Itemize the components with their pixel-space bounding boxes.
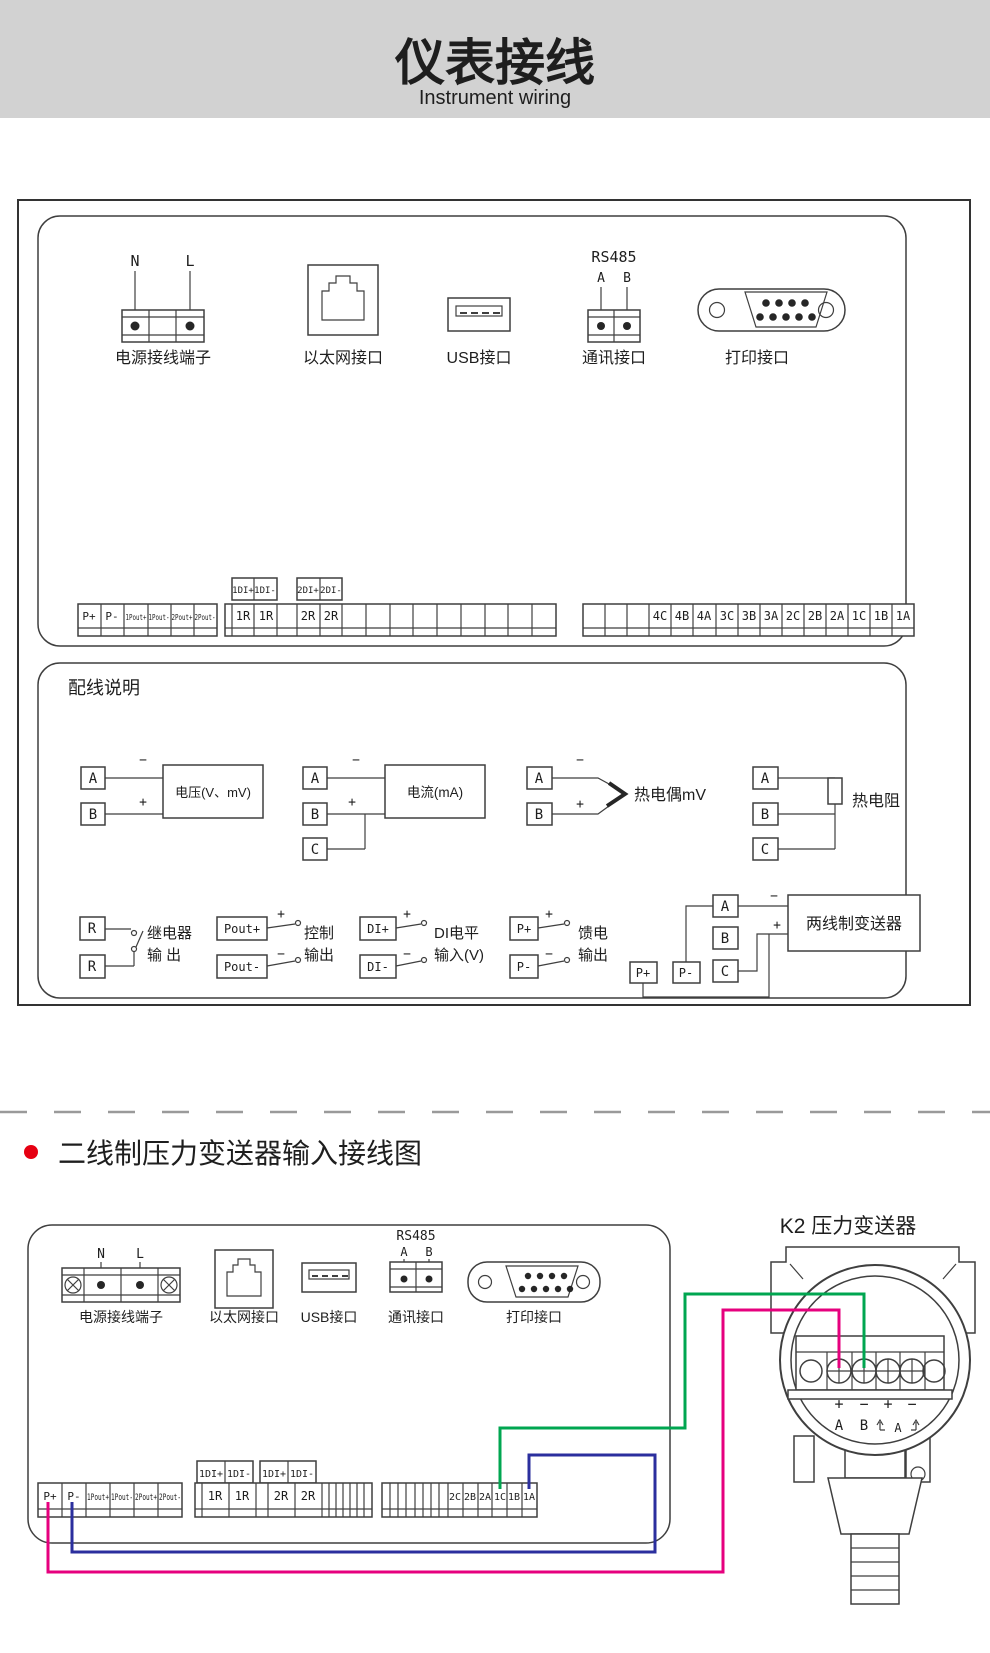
strip-cell: 2R bbox=[301, 609, 316, 623]
screw-b-label: B bbox=[860, 1418, 868, 1434]
strip-cell: 2R bbox=[324, 609, 339, 623]
current-label: 电流(mA) bbox=[407, 785, 463, 800]
terminal-a: A bbox=[311, 771, 320, 787]
di2-minus: 2DI- bbox=[320, 586, 342, 596]
section2-heading: 二线制压力变送器输入接线图 bbox=[24, 1138, 422, 1169]
polarity-minus: − bbox=[545, 947, 553, 962]
ethernet-port-label: 以太网接口 bbox=[209, 1309, 279, 1325]
terminal-c: C bbox=[721, 964, 729, 980]
title-banner: 仪表接线 Instrument wiring bbox=[0, 0, 990, 118]
di1-plus: 1DI+ bbox=[232, 586, 254, 596]
usb-icon bbox=[309, 1270, 349, 1279]
strip-cell: 2A bbox=[479, 1492, 491, 1503]
control-label-2: 输出 bbox=[304, 947, 334, 964]
di-terminal-boxes-bottom: 1DI+ 1DI- 1DI+ 1DI- bbox=[197, 1461, 316, 1483]
screw-polarity-3: + bbox=[883, 1395, 892, 1413]
loop-a-label: A bbox=[894, 1421, 902, 1435]
comm-port: RS485 A B 通讯接口 bbox=[388, 1229, 444, 1325]
terminal-b: B bbox=[535, 807, 543, 823]
polarity-plus: + bbox=[403, 907, 411, 922]
di2-plus: 2DI+ bbox=[297, 586, 319, 596]
strip-cell: 2Pout- bbox=[159, 1493, 181, 1503]
polarity-plus: + bbox=[348, 795, 356, 810]
comm-a-dot bbox=[597, 322, 605, 330]
polarity-plus: + bbox=[277, 907, 285, 922]
wiring-feed-output: P+ P- + − 馈电 输出 bbox=[510, 907, 608, 978]
terminal-strip-right-top: 4C 4B 4A 3C 3B 3A 2C 2B 2A 1C 1B 1A bbox=[583, 604, 914, 636]
di2-plus: 1DI+ bbox=[262, 1469, 286, 1480]
wire-feed-plus-magenta bbox=[48, 1310, 839, 1572]
strip-cell: 2A bbox=[830, 609, 845, 623]
wiring-thermocouple: A B − + 热电偶mV bbox=[527, 753, 706, 825]
strip-cell: 1B bbox=[874, 609, 888, 623]
strip-cell: 2B bbox=[464, 1492, 476, 1503]
terminal-r2: R bbox=[88, 959, 97, 975]
strip-cell: 4B bbox=[675, 609, 689, 623]
polarity-plus: + bbox=[545, 907, 553, 922]
wiring-relay: R R 继电器 输 出 bbox=[80, 917, 192, 978]
terminal-b: B bbox=[721, 931, 729, 947]
wiring-guide-panel: 配线说明 A B − + 电压(V、mV) A B C − + 电流(mA) bbox=[38, 663, 920, 998]
comm-b-label: B bbox=[425, 1245, 432, 1259]
thermocouple-junction-icon bbox=[607, 783, 625, 806]
terminal-p-plus: P+ bbox=[636, 966, 650, 980]
strip-cell: 2R bbox=[301, 1489, 316, 1503]
rear-panel-outline bbox=[38, 216, 906, 646]
comm-port: RS485 A B 通讯接口 bbox=[582, 248, 646, 367]
db9-shell bbox=[468, 1262, 600, 1302]
db9-screw-left bbox=[479, 1276, 492, 1289]
power-terminal-port: N L 电源接线端子 bbox=[62, 1247, 180, 1325]
terminal-a: A bbox=[761, 771, 770, 787]
terminal-di-minus: DI- bbox=[367, 960, 389, 974]
screw-polarity-4: − bbox=[907, 1395, 916, 1413]
polarity-minus: − bbox=[352, 753, 360, 768]
rtd-resistor-icon bbox=[828, 778, 842, 804]
strip-cell: 1R bbox=[259, 609, 274, 623]
db9-connector-icon bbox=[745, 292, 827, 327]
terminal-di-plus: DI+ bbox=[367, 922, 389, 936]
strip-cell: P+ bbox=[82, 610, 96, 623]
terminal-b: B bbox=[761, 807, 769, 823]
terminal-r1: R bbox=[88, 921, 97, 937]
polarity-minus: − bbox=[403, 947, 411, 962]
terminal-a: A bbox=[721, 899, 730, 915]
strip-cell: 3B bbox=[742, 609, 756, 623]
ethernet-port: 以太网接口 bbox=[209, 1250, 279, 1325]
wiring-di-input: DI+ DI- + − DI电平 输入(V) bbox=[360, 907, 484, 978]
polarity-minus: − bbox=[277, 947, 285, 962]
db9-pins bbox=[756, 299, 816, 321]
usb-port-label: USB接口 bbox=[447, 349, 512, 367]
rear-panel-top: N L 电源接线端子 以太网接口 USB接口 RS485 A B bbox=[38, 216, 914, 646]
polarity-minus: − bbox=[770, 889, 778, 904]
voltage-label: 电压(V、mV) bbox=[175, 785, 251, 800]
strip-cell: 2C bbox=[449, 1492, 461, 1503]
di1-minus: 1DI- bbox=[227, 1469, 251, 1480]
power-n-label: N bbox=[130, 252, 139, 270]
strip-cell: 1A bbox=[896, 609, 911, 623]
power-port-label: 电源接线端子 bbox=[79, 1309, 163, 1325]
strip-cell: 2Pout- bbox=[195, 613, 216, 622]
control-label-1: 控制 bbox=[304, 925, 334, 942]
rs485-label: RS485 bbox=[591, 248, 636, 266]
strip-cell: 4A bbox=[697, 609, 712, 623]
connection-wires bbox=[48, 1294, 864, 1572]
strip-cell: 1R bbox=[208, 1489, 223, 1503]
polarity-plus: + bbox=[139, 795, 147, 810]
strip-cell: P- bbox=[105, 610, 118, 623]
bullet-icon bbox=[24, 1145, 38, 1159]
power-l-label: L bbox=[136, 1247, 144, 1262]
rtd-label: 热电阻 bbox=[852, 792, 900, 810]
strip-cell: P+ bbox=[43, 1490, 57, 1503]
strip-cell: 1C bbox=[852, 609, 866, 623]
terminal-p-plus: P+ bbox=[517, 922, 531, 936]
wiring-control-output: Pout+ Pout- + − 控制 输出 bbox=[217, 907, 334, 978]
comm-port-label: 通讯接口 bbox=[582, 349, 646, 367]
terminal-strip-left-bottom: P+ P- 1Pout+ 1Pout- 2Pout+ 2Pout- bbox=[38, 1483, 182, 1517]
polarity-plus: + bbox=[773, 918, 781, 933]
usb-port: USB接口 bbox=[447, 298, 512, 367]
screw-polarity-2: − bbox=[859, 1395, 868, 1413]
terminal-c: C bbox=[311, 842, 319, 858]
wiring-two-wire-transmitter: A B C P+ P- − + 两线制变送器 bbox=[630, 889, 920, 997]
strip-cell: 1Pout+ bbox=[87, 1493, 109, 1503]
power-port-label: 电源接线端子 bbox=[115, 349, 211, 367]
polarity-plus: + bbox=[576, 797, 584, 812]
rj45-icon bbox=[322, 276, 364, 320]
terminal-strip-left-top: P+ P- 1Pout+ 1Pout- 2Pout+ 2Pout- bbox=[78, 604, 217, 636]
page-title: 仪表接线 bbox=[394, 35, 595, 91]
di2-minus: 1DI- bbox=[290, 1469, 314, 1480]
relay-label-1: 继电器 bbox=[147, 925, 192, 942]
comm-a-label: A bbox=[400, 1245, 408, 1259]
wiring-heading: 配线说明 bbox=[68, 678, 140, 698]
db9-screw-left bbox=[710, 303, 725, 318]
printer-port-label: 打印接口 bbox=[725, 349, 789, 367]
db9-screw-right bbox=[577, 1276, 590, 1289]
db9-pins bbox=[519, 1273, 573, 1292]
printer-port: 打印接口 bbox=[468, 1262, 600, 1325]
rear-panel-bottom: N L 电源接线端子 以太网接口 USB接口 R bbox=[28, 1225, 670, 1543]
terminal-strip-middle-top: 1R 1R 2R 2R bbox=[225, 604, 556, 636]
terminal-c: C bbox=[761, 842, 769, 858]
transmitter-title: K2 压力变送器 bbox=[780, 1215, 917, 1238]
db9-shell bbox=[698, 289, 845, 331]
usb-port: USB接口 bbox=[301, 1263, 358, 1325]
usb-outline bbox=[448, 298, 510, 331]
terminal-pout-plus: Pout+ bbox=[224, 922, 260, 936]
pressure-transmitter: K2 压力变送器 + − + − A bbox=[771, 1215, 975, 1604]
strip-cell: 1R bbox=[236, 609, 251, 623]
feed-label-1: 馈电 bbox=[578, 925, 608, 942]
strip-cell: P- bbox=[67, 1490, 80, 1503]
feed-label-2: 输出 bbox=[578, 947, 608, 964]
wiring-rtd: A B C 热电阻 bbox=[753, 767, 900, 860]
rj45-icon bbox=[227, 1259, 261, 1296]
terminal-a: A bbox=[89, 771, 98, 787]
comm-b-dot bbox=[623, 322, 631, 330]
di1-plus: 1DI+ bbox=[199, 1469, 223, 1480]
screw-a-label: A bbox=[835, 1418, 844, 1434]
two-wire-label: 两线制变送器 bbox=[806, 915, 902, 933]
printer-port: 打印接口 bbox=[698, 289, 845, 367]
polarity-minus: − bbox=[576, 753, 584, 768]
transmitter-nut bbox=[828, 1478, 922, 1534]
screw-polarity-1: + bbox=[834, 1395, 843, 1413]
strip-cell: 1C bbox=[494, 1492, 506, 1503]
terminal-strip-right-bottom: 2C 2B 2A 1C 1B 1A bbox=[382, 1483, 537, 1517]
rs485-label: RS485 bbox=[396, 1229, 435, 1244]
printer-port-label: 打印接口 bbox=[506, 1309, 562, 1325]
strip-cell: 1R bbox=[235, 1489, 250, 1503]
power-l-label: L bbox=[185, 252, 194, 270]
strip-cell: 2Pout+ bbox=[135, 1493, 157, 1503]
terminal-b: B bbox=[89, 807, 97, 823]
usb-port-label: USB接口 bbox=[301, 1309, 358, 1325]
power-n-label: N bbox=[97, 1247, 105, 1262]
page-subtitle: Instrument wiring bbox=[419, 87, 571, 109]
terminal-p-minus: P- bbox=[517, 960, 531, 974]
wiring-current: A B C − + 电流(mA) bbox=[303, 753, 485, 860]
relay-label-2: 输 出 bbox=[147, 947, 181, 964]
strip-cell: 1A bbox=[523, 1492, 535, 1503]
di1-minus: 1DI- bbox=[254, 586, 276, 596]
comm-b-label: B bbox=[623, 271, 631, 286]
strip-cell: 2C bbox=[786, 609, 800, 623]
power-l-dot bbox=[186, 322, 195, 331]
transmitter-thread-stub bbox=[851, 1534, 899, 1604]
wiring-voltage: A B − + 电压(V、mV) bbox=[81, 753, 263, 825]
power-n-dot bbox=[131, 322, 140, 331]
db9-connector-icon bbox=[506, 1266, 578, 1297]
section2-title: 二线制压力变送器输入接线图 bbox=[58, 1138, 422, 1169]
power-terminal-port: N L 电源接线端子 bbox=[115, 252, 211, 367]
terminal-b: B bbox=[311, 807, 319, 823]
usb-icon bbox=[456, 306, 502, 316]
strip-cell: 1Pout+ bbox=[126, 613, 147, 622]
comm-port-label: 通讯接口 bbox=[388, 1309, 444, 1325]
terminal-p-minus: P- bbox=[679, 966, 693, 980]
thermocouple-label: 热电偶mV bbox=[634, 786, 706, 804]
strip-cell: 2Pout+ bbox=[172, 613, 193, 622]
di-label-2: 输入(V) bbox=[434, 947, 484, 964]
strip-cell: 2B bbox=[808, 609, 822, 623]
di-label-1: DI电平 bbox=[434, 925, 479, 942]
comm-a-label: A bbox=[597, 271, 605, 286]
strip-cell: 1B bbox=[508, 1492, 520, 1503]
transmitter-bolt-left bbox=[794, 1436, 814, 1482]
di-terminal-boxes-top: 1DI+ 1DI- 2DI+ 2DI- bbox=[232, 578, 342, 600]
terminal-pout-minus: Pout- bbox=[224, 960, 260, 974]
strip-cell: 1Pout- bbox=[111, 1493, 133, 1503]
polarity-minus: − bbox=[139, 753, 147, 768]
strip-cell: 1Pout- bbox=[149, 613, 170, 622]
strip-cell: 4C bbox=[653, 609, 667, 623]
strip-cell: 2R bbox=[274, 1489, 289, 1503]
strip-cell: 3C bbox=[720, 609, 734, 623]
strip-cell: 3A bbox=[764, 609, 779, 623]
terminal-strip-middle-bottom: 1R 1R 2R 2R bbox=[195, 1483, 372, 1517]
terminal-a: A bbox=[535, 771, 544, 787]
ethernet-port-label: 以太网接口 bbox=[303, 349, 383, 367]
ethernet-port: 以太网接口 bbox=[303, 265, 383, 367]
